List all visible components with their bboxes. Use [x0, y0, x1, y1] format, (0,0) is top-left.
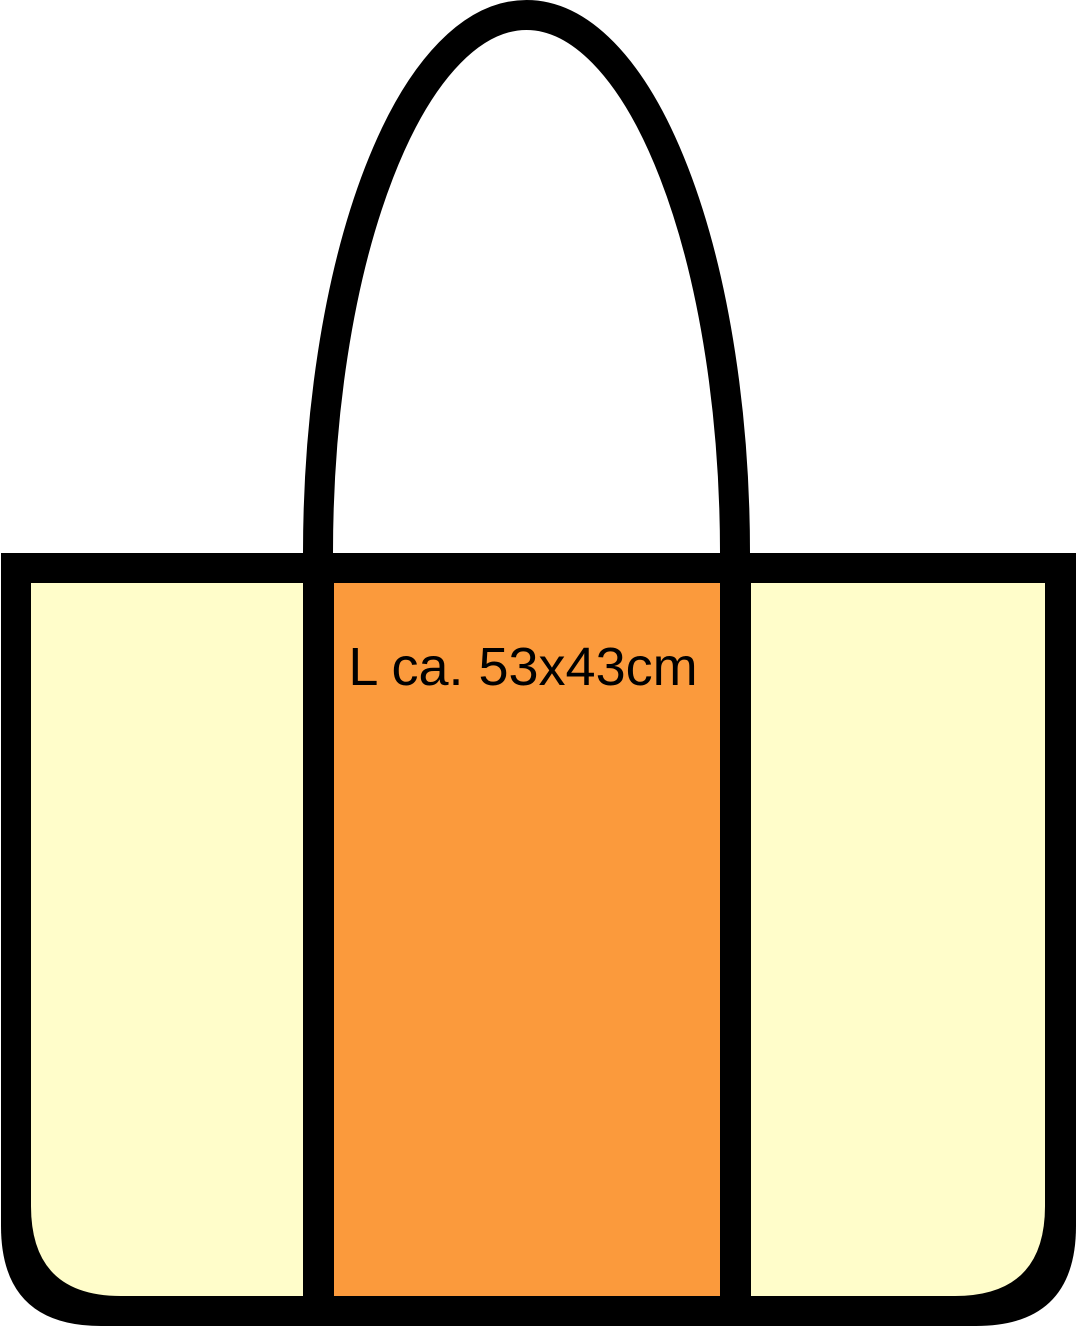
bag-left-panel: [31, 583, 303, 1296]
size-label: L ca. 53x43cm: [348, 637, 697, 697]
bag-illustration-canvas: L ca. 53x43cm: [0, 0, 1077, 1328]
bag-right-panel: [751, 583, 1045, 1296]
bag-handle: [318, 15, 735, 600]
bag-illustration: L ca. 53x43cm: [0, 0, 1077, 1328]
